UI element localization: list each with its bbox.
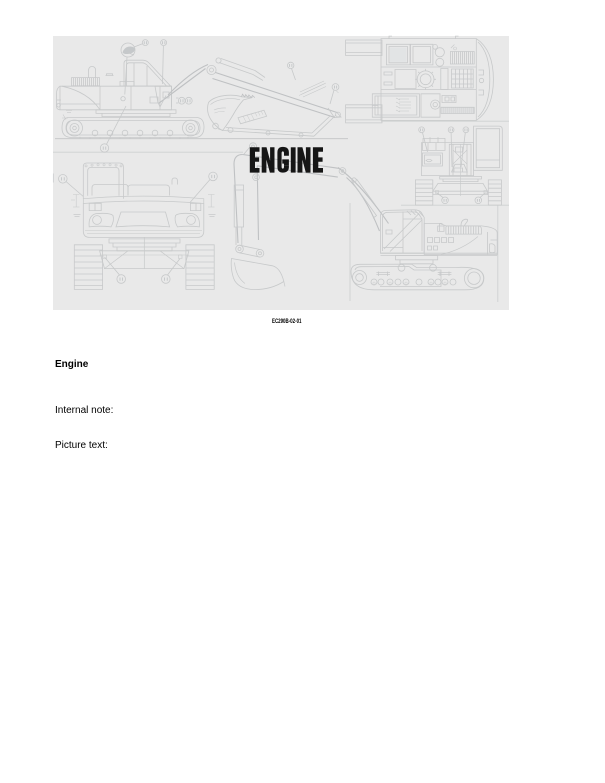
svg-text:EC290B-02-01: EC290B-02-01	[272, 319, 302, 325]
